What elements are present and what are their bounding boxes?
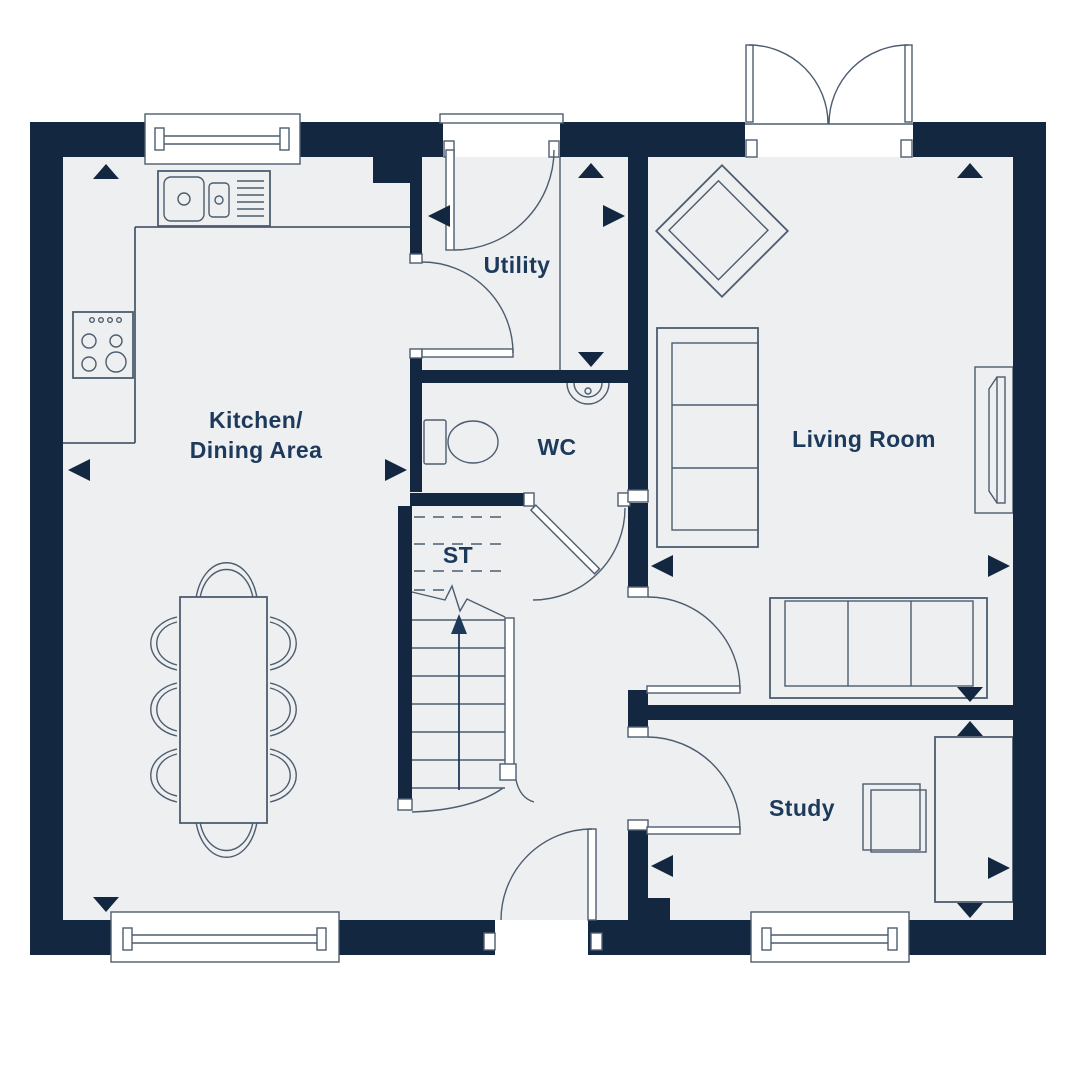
door-leaf	[422, 349, 513, 357]
floor-plan-drawing: Kitchen/ Dining Area Utility WC ST Livin…	[0, 0, 1080, 1080]
wall-wc-top	[410, 370, 648, 383]
door-jamb	[746, 140, 757, 157]
door-jamb	[591, 933, 602, 950]
door-jamb	[901, 140, 912, 157]
wall-hall-living-mid	[628, 503, 648, 588]
wall-end-cap	[628, 490, 648, 502]
door-jamb	[628, 820, 648, 830]
kitchen-window-top	[145, 114, 300, 164]
door-leaf	[588, 829, 596, 920]
wall-hall-study-lower	[628, 830, 648, 920]
sofa-bottom	[770, 598, 987, 698]
wall-right	[1013, 122, 1046, 955]
wall-hall-stub	[648, 898, 670, 920]
wall-hall-living-upper	[628, 157, 648, 492]
window-end	[123, 928, 132, 950]
kitchen-window-bottom	[111, 912, 339, 962]
wall-left	[30, 122, 63, 955]
door-leaf	[746, 45, 753, 122]
door-jamb	[484, 933, 495, 950]
door-jamb	[628, 727, 648, 737]
door-leaf	[446, 150, 454, 250]
door-frame	[440, 114, 563, 123]
room-label-study: Study	[769, 795, 835, 821]
window-end	[317, 928, 326, 950]
door-jamb	[410, 349, 422, 358]
wall-top-middle	[560, 122, 745, 157]
window-end	[155, 128, 164, 150]
door-leaf	[647, 686, 740, 693]
door-leaf	[647, 827, 740, 834]
dining-table	[180, 597, 267, 823]
window-end	[280, 128, 289, 150]
window-frame	[111, 912, 339, 962]
window-frame	[751, 912, 909, 962]
sofa-left	[657, 328, 758, 547]
window-end	[888, 928, 897, 950]
stair-newel	[500, 764, 516, 780]
room-label-storage: ST	[443, 542, 473, 568]
wall-kitchen-stairs	[398, 506, 412, 810]
door-jamb	[524, 493, 534, 506]
room-label-living-room: Living Room	[792, 426, 936, 452]
door-jamb	[628, 587, 648, 597]
floor-plan: Kitchen/ Dining Area Utility WC ST Livin…	[0, 0, 1080, 1080]
room-label-kitchen-line2: Dining Area	[190, 437, 323, 463]
door-jamb	[410, 254, 422, 263]
wall-wc-bottom	[410, 493, 524, 506]
wall-end-cap	[398, 799, 412, 810]
study-window	[751, 912, 909, 962]
stair-handrail	[505, 618, 514, 766]
wall-living-study-divider	[648, 705, 1013, 720]
room-label-utility: Utility	[484, 252, 551, 278]
window-end	[762, 928, 771, 950]
room-label-wc: WC	[537, 434, 576, 460]
desk	[935, 737, 1013, 902]
window-frame	[145, 114, 300, 164]
door-leaf	[905, 45, 912, 122]
wall-kitchen-utility	[410, 152, 422, 262]
room-label-kitchen-line1: Kitchen/	[209, 407, 303, 433]
